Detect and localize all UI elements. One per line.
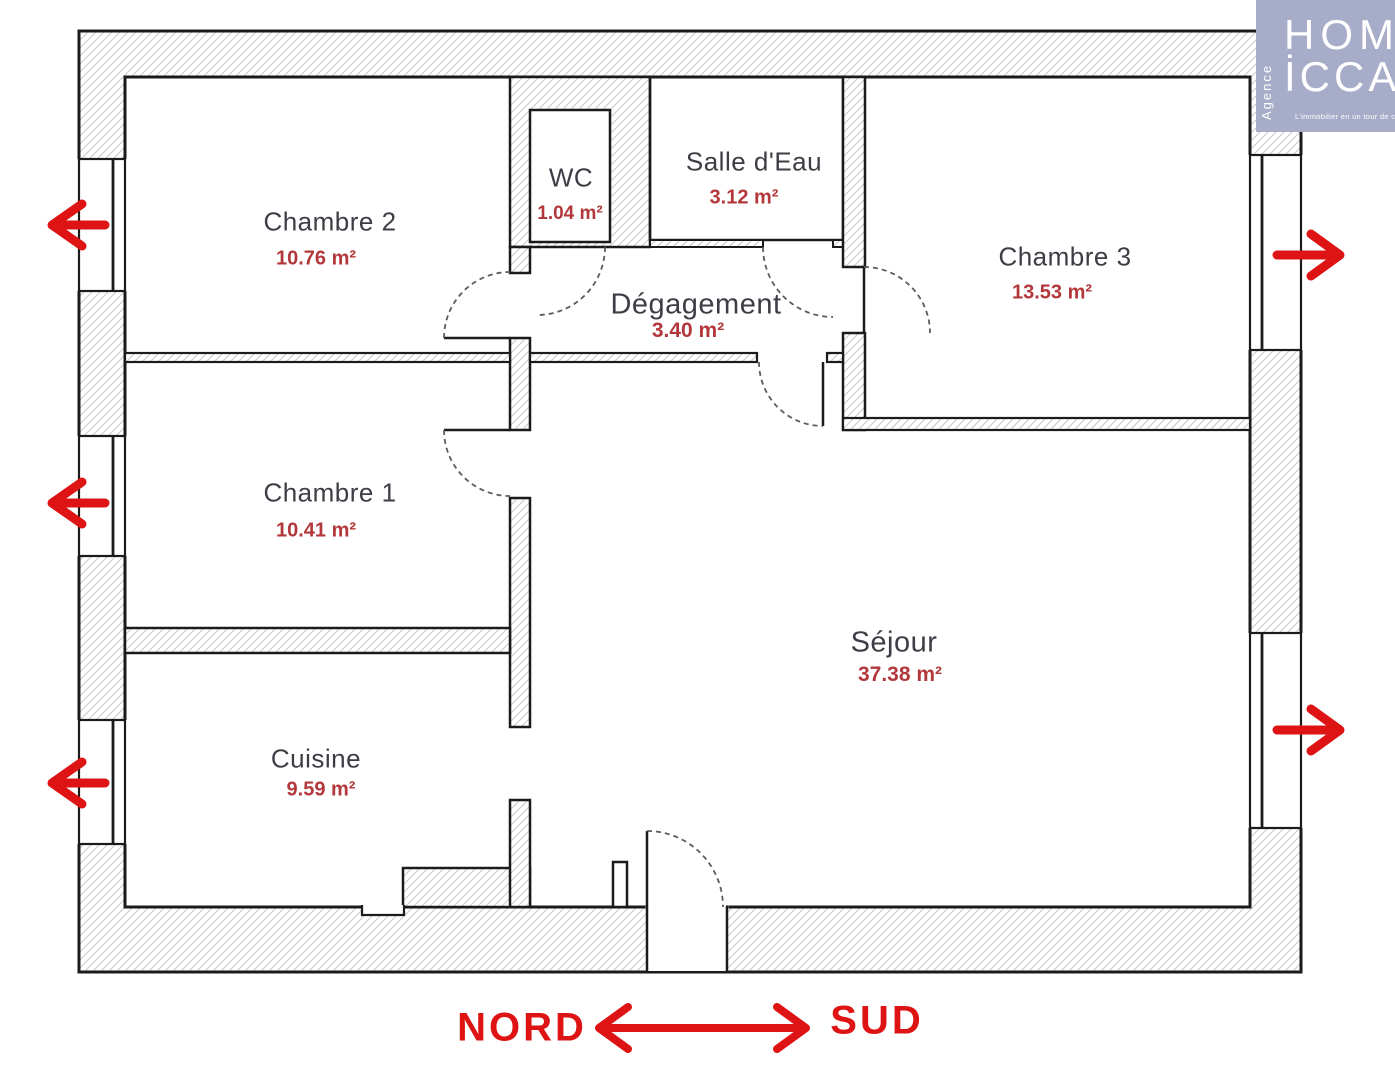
door-arc-chambre2 [444,272,510,338]
entrance-opening [646,906,729,972]
compass-label-nord: NORD [457,1006,587,1051]
room-area-wc: 1.04 m² [537,203,602,225]
floor-plan-page: Chambre 2 10.76 m² WC 1.04 m² Salle d'Ea… [0,0,1395,1080]
room-label-degagement: Dégagement [610,289,781,322]
room-label-sejour: Séjour [851,627,938,660]
room-area-chambre1: 10.41 m² [276,520,356,543]
door-arc-chambre3 [864,267,930,333]
logo-tagline: L'immobilier en un tour de clé [1295,112,1395,121]
room-label-wc: WC [549,163,593,194]
room-label-cuisine: Cuisine [271,744,361,775]
agency-logo: Agence HOM İCCA L'immobilier en un tour … [1256,0,1395,132]
logo-vertical-text: Agence [1259,44,1274,120]
room-area-chambre2: 10.76 m² [276,248,356,271]
door-arc-chambre1 [444,430,510,496]
room-label-chambre1: Chambre 1 [263,478,396,509]
room-area-sejour: 37.38 m² [858,663,942,687]
pillar [613,862,627,907]
room-label-chambre3: Chambre 3 [998,242,1131,273]
room-label-salle-eau: Salle d'Eau [686,147,822,178]
room-area-degagement: 3.40 m² [652,319,724,343]
door-arc-sejour [759,362,823,426]
compass-arrow [599,1007,806,1049]
window-chambre1 [77,436,127,556]
compass-label-sud: SUD [830,999,923,1044]
door-arc-entrance [647,831,723,907]
room-label-chambre2: Chambre 2 [263,207,396,238]
room-area-cuisine: 9.59 m² [287,779,356,802]
logo-brand-line1: HOM [1284,14,1395,56]
door-arc-wc [537,247,605,315]
logo-brand-line2: İCCA [1284,56,1395,98]
room-area-chambre3: 13.53 m² [1012,282,1092,305]
room-area-salle-eau: 3.12 m² [710,187,779,210]
